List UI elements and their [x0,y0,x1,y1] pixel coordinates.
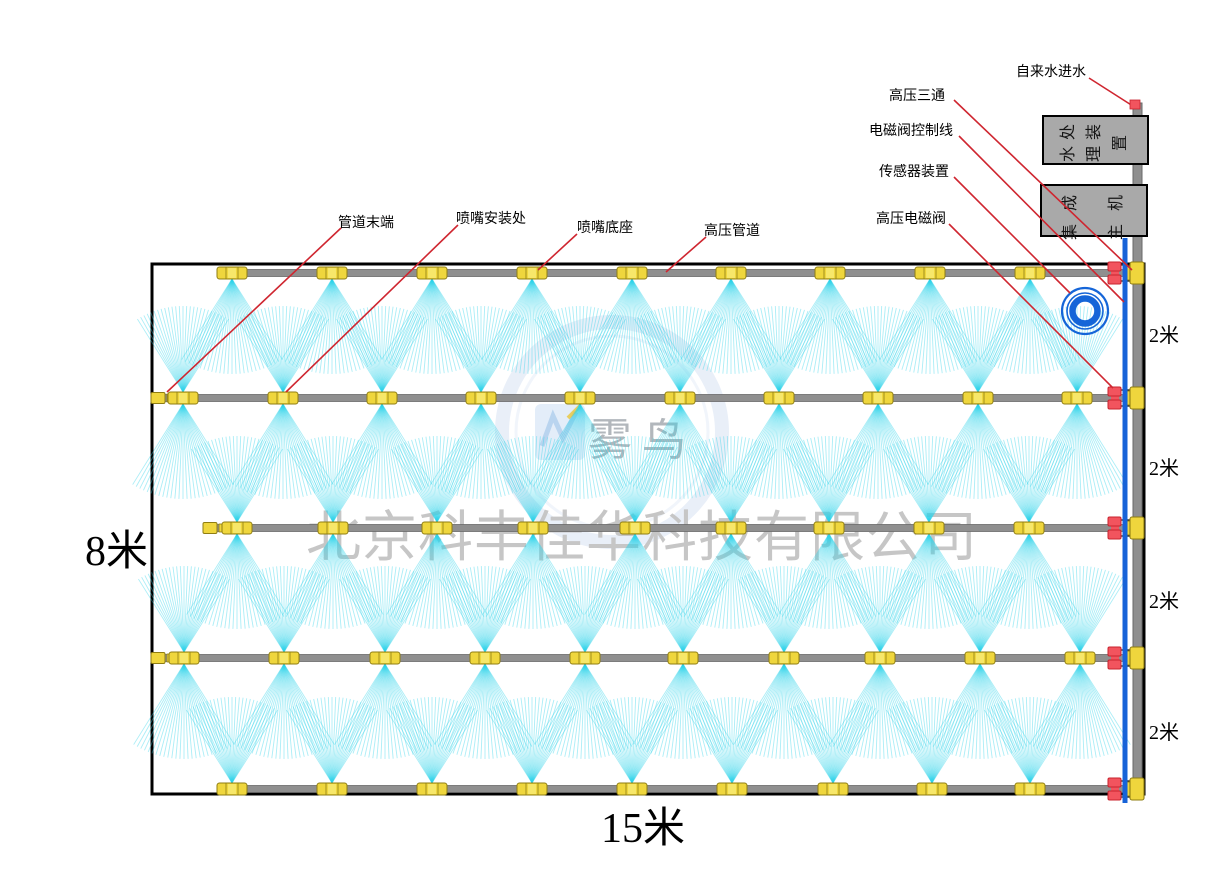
water-treatment-box: 水处 理装 置 [1042,115,1149,165]
nozzle-base [717,783,747,795]
height-dimension-label: 8米 [85,517,148,578]
nozzle-base [417,267,447,279]
nozzle-base [222,522,252,534]
nozzle-base [317,783,347,795]
nozzle-base [818,783,848,795]
callout-high-pressure-solenoid-valve: 高压电磁阀 [876,208,946,228]
nozzle-base [1062,392,1092,404]
callout-solenoid-control-line: 电磁阀控制线 [869,120,953,140]
nozzle-base [517,783,547,795]
nozzle-base [1065,652,1095,664]
nozzle-base [917,783,947,795]
pipe-row-3 [187,436,1144,629]
nozzle-base [268,392,298,404]
high-pressure-pipe [225,786,1144,793]
nozzle-base [370,652,400,664]
nozzle-base [815,267,845,279]
nozzle-base [716,267,746,279]
high-pressure-pipe [223,270,1144,277]
nozzle-base [863,392,893,404]
nozzle-base [764,392,794,404]
high-pressure-tee [1130,778,1144,800]
callout-sensor-device: 传感器装置 [879,161,949,181]
solenoid-control-line [1123,238,1128,803]
callout-high-pressure-pipe: 高压管道 [704,220,760,240]
callout-pipe-end: 管道末端 [338,212,394,232]
nozzle-base [470,652,500,664]
pipe-end-cap [151,393,165,404]
nozzle-base [217,267,247,279]
high-pressure-tee [1130,387,1144,409]
nozzle-base [620,522,650,534]
nozzle-base [565,392,595,404]
nozzle-base [318,522,348,534]
row-gap-dimension-label: 2米 [1149,452,1179,481]
nozzle-base [217,783,247,795]
nozzle-base [466,392,496,404]
nozzle-base [1015,783,1045,795]
pipe-end-cap [203,523,217,534]
nozzle-base [317,267,347,279]
high-pressure-pipe [210,525,1144,532]
nozzle-base [422,522,452,534]
nozzle-base [914,522,944,534]
nozzle-base [517,267,547,279]
nozzle-base [168,392,198,404]
nozzle-base [367,392,397,404]
nozzle-base [963,392,993,404]
integrated-host-label: 集成 主机 [1048,181,1140,239]
nozzle-base [570,652,600,664]
high-pressure-pipe [157,655,1144,662]
row-gap-dimension-label: 2米 [1149,319,1179,348]
callout-nozzle-install: 喷嘴安装处 [456,208,526,228]
high-pressure-tee [1130,262,1144,284]
nozzle-base [915,267,945,279]
irrigation-diagram-canvas [0,0,1222,870]
nozzle-base [169,652,199,664]
callout-nozzle-base: 喷嘴底座 [577,217,633,237]
pipe-end-cap [151,653,165,664]
nozzle-base [965,652,995,664]
callout-high-pressure-tee: 高压三通 [889,85,945,105]
nozzle-base [865,652,895,664]
nozzle-base [769,652,799,664]
nozzle-base [716,522,746,534]
row-gap-dimension-label: 2米 [1149,585,1179,614]
spray-fans [186,697,1075,783]
nozzle-base [617,267,647,279]
nozzle-base [814,522,844,534]
nozzle-base [417,783,447,795]
nozzle-base [269,652,299,664]
row-gap-dimension-label: 2米 [1149,716,1179,745]
width-dimension-label: 15米 [601,794,685,855]
pipe-row-2 [133,306,1144,499]
nozzle-base [665,392,695,404]
water-treatment-label: 水处 理装 置 [1056,118,1134,162]
nozzle-base [1015,267,1045,279]
high-pressure-tee [1130,647,1144,669]
integrated-host-box: 集成 主机 [1040,184,1148,237]
nozzle-base [668,652,698,664]
callout-tap-water-inlet: 自来水进水 [1016,61,1086,81]
high-pressure-tee [1130,517,1144,539]
nozzle-base [1014,522,1044,534]
nozzle-base [518,522,548,534]
high-pressure-pipe [157,395,1144,402]
